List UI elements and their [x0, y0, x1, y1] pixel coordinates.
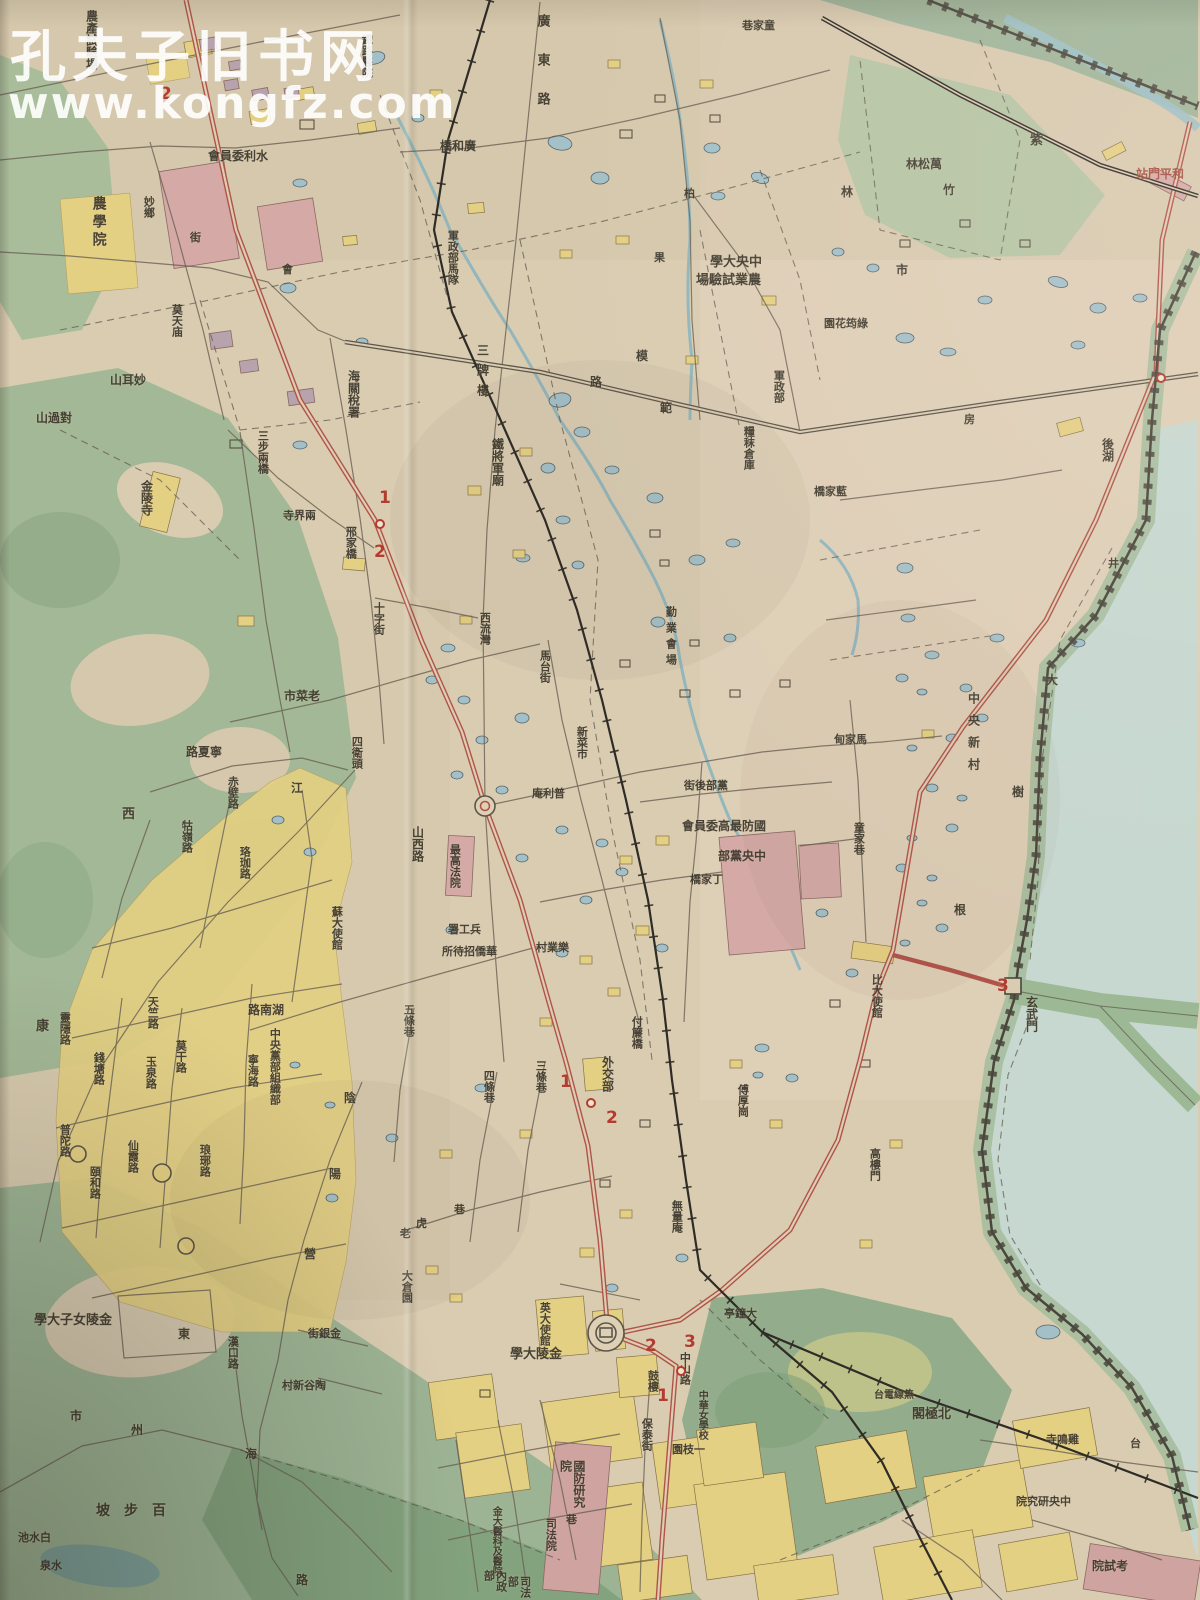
map-photo: 農產試驗場農學院妙鄉街會會員委利水鐵路醫院廣東路橋和廣軍政部馬隊學大央中場驗試業…	[0, 0, 1200, 1600]
map-label: 園花筠綠	[824, 318, 868, 330]
map-label: 範	[660, 402, 672, 415]
map-label: 莫天庙	[170, 304, 182, 337]
bus-route-marker: 2	[606, 1108, 618, 1128]
map-label: 市	[896, 264, 908, 277]
map-label: 勤業會場	[664, 606, 676, 670]
bus-route-marker: 2	[374, 542, 386, 562]
map-label: 營	[304, 1248, 316, 1261]
map-label: 三條巷	[534, 1060, 546, 1093]
map-label: 外交部	[600, 1056, 613, 1092]
map-label: 妙鄉	[142, 196, 154, 218]
map-label: 村新谷陶	[282, 1380, 326, 1392]
map-label: 無量庵	[670, 1200, 682, 1233]
map-label: 州	[131, 1424, 143, 1437]
map-label: 莫干路	[174, 1040, 186, 1073]
map-label: 寺鳴雞	[1046, 1434, 1079, 1446]
map-label: 路	[296, 1574, 308, 1587]
map-label: 康	[36, 1020, 49, 1035]
map-label: 金大醫科及醫院	[490, 1506, 501, 1576]
map-label: 西	[122, 808, 135, 823]
map-label: 村業樂	[536, 942, 569, 954]
map-label: 軍政部馬隊	[446, 230, 458, 285]
map-label: 比大使館	[870, 974, 882, 1018]
map-label: 糧秣倉庫	[742, 426, 754, 470]
map-label: 山西路	[410, 826, 423, 862]
map-label: 中華女學校	[696, 1390, 707, 1440]
bus-route-marker: 1	[560, 1072, 572, 1092]
map-label: 學大陵金	[510, 1348, 562, 1363]
map-label: 金陵寺	[139, 480, 152, 516]
map-label: 寺界兩	[283, 510, 316, 522]
map-label: 甸家馬	[834, 734, 867, 746]
map-label: 高樓門	[868, 1148, 880, 1181]
map-label: 老	[400, 1228, 411, 1240]
map-label: 果	[654, 252, 665, 264]
map-label: 三牌樓	[475, 344, 488, 404]
map-label: 後湖	[1100, 438, 1113, 462]
map-label: 保泰街	[640, 1418, 652, 1451]
map-label: 陰	[344, 1092, 356, 1105]
map-label: 署工兵	[448, 924, 481, 936]
map-label: 內政部	[482, 1570, 507, 1600]
map-label: 普陀路	[58, 1124, 70, 1157]
map-label: 英大使館	[538, 1302, 550, 1346]
map-label: 林松萬	[906, 158, 942, 171]
map-label: 泉水	[40, 1560, 62, 1572]
map-label: 天竺路	[146, 996, 158, 1029]
map-label: 付簾橋	[630, 1016, 642, 1049]
map-label: 童家巷	[852, 822, 864, 855]
map-label: 頤和路	[88, 1166, 100, 1199]
map-label: 池水白	[18, 1532, 51, 1544]
map-label: 大	[1046, 674, 1058, 687]
map-label: 路	[590, 376, 602, 389]
map-label: 街銀金	[308, 1328, 341, 1340]
map-label: 玉泉路	[144, 1056, 156, 1089]
map-label: 所待招僑華	[442, 946, 497, 958]
map-label: 台	[1130, 1438, 1141, 1450]
map-label: 四條巷	[482, 1070, 494, 1103]
map-label: 柏	[684, 188, 695, 200]
map-label: 鐵將軍廟	[490, 438, 503, 486]
map-label: 亭鐘大	[724, 1308, 757, 1320]
map-label: 巷	[566, 1514, 577, 1526]
map-label: 閣極北	[912, 1408, 951, 1423]
map-label: 五條巷	[402, 1004, 414, 1037]
map-label: 街	[190, 232, 201, 244]
map-label: 江	[291, 782, 303, 795]
watermark-site-url: www.kongfz.com	[8, 78, 457, 129]
map-label: 海	[245, 1448, 257, 1461]
map-label: 站門平和	[1136, 168, 1184, 181]
map-label: 山耳妙	[110, 374, 146, 387]
map-label: 市	[70, 1410, 82, 1423]
map-label: 仙霞路	[126, 1140, 138, 1173]
map-label: 虎	[416, 1218, 427, 1230]
map-label: 新菜市	[575, 726, 587, 759]
map-label: 房	[964, 414, 975, 426]
map-label: 院究研央中	[1016, 1496, 1071, 1508]
map-label: 陽	[329, 1168, 341, 1181]
map-label: 竹	[943, 184, 955, 197]
map-label: 珞珈路	[238, 846, 250, 879]
map-label: 琅琊路	[198, 1144, 210, 1177]
map-label: 國防研究院	[558, 1460, 585, 1518]
map-label: 巷家童	[742, 20, 775, 32]
map-label: 四衛頭	[350, 736, 362, 769]
map-label: 會員委高最防國	[682, 820, 766, 833]
map-label: 園枝一	[672, 1444, 705, 1456]
map-label: 根	[954, 904, 966, 917]
map-label: 模	[636, 350, 648, 363]
bus-route-marker: 2	[645, 1336, 657, 1356]
map-label: 紫	[1030, 134, 1043, 149]
bus-stop-ring	[676, 1366, 686, 1376]
map-label: 路南湖	[248, 1004, 284, 1017]
map-label: 會員委利水	[208, 150, 268, 163]
map-label: 學大子女陵金	[34, 1314, 112, 1329]
map-label: 司法部	[506, 1576, 531, 1600]
map-label: 樹	[1012, 786, 1024, 799]
map-label: 最高法院	[448, 844, 460, 888]
map-label: 橋家藍	[814, 486, 847, 498]
map-label: 廣東路	[534, 14, 549, 131]
map-label: 中央黨部組織部	[268, 1028, 280, 1105]
map-label: 路夏寧	[186, 746, 222, 759]
bus-route-marker: 3	[997, 976, 1009, 996]
map-label: 部黨央中	[718, 850, 766, 863]
map-label: 馬台街	[538, 650, 550, 683]
map-label: 台電線無	[874, 1390, 914, 1401]
map-label: 東	[178, 1328, 190, 1341]
map-label: 學大央中	[710, 256, 762, 271]
map-label: 玄武門	[1024, 996, 1037, 1032]
map-label: 靈隱路	[58, 1012, 70, 1045]
map-label: 三步兩橋	[256, 430, 268, 474]
map-label: 會	[282, 264, 293, 276]
map-label: 坡步百	[96, 1504, 180, 1520]
map-label: 司法院	[544, 1518, 556, 1551]
map-label: 橋和廣	[440, 140, 476, 153]
map-label: 蘇大使館	[330, 906, 342, 950]
map-label: 軍政部	[772, 370, 784, 403]
map-label: 海關稅署	[346, 370, 359, 418]
map-label: 街後部黨	[684, 780, 728, 792]
map-label: 中央新村	[966, 692, 979, 780]
map-label: 橋家丁	[690, 874, 723, 886]
map-label: 邢家橋	[344, 526, 356, 559]
map-label: 寧海路	[246, 1054, 258, 1087]
map-labels-layer: 農產試驗場農學院妙鄉街會會員委利水鐵路醫院廣東路橋和廣軍政部馬隊學大央中場驗試業…	[0, 0, 1200, 1600]
map-label: 庵利普	[532, 788, 565, 800]
map-label: 林	[841, 186, 853, 199]
map-label: 十字街	[372, 602, 384, 635]
bus-route-marker: 3	[684, 1332, 696, 1352]
bus-stop-ring	[375, 519, 385, 529]
map-label: 院試考	[1092, 1560, 1128, 1573]
map-label: 巷	[454, 1204, 465, 1216]
bus-route-marker: 1	[657, 1386, 669, 1406]
bus-route-marker: 1	[379, 488, 391, 508]
map-label: 農學院	[90, 196, 106, 250]
bus-stop-ring	[586, 1098, 596, 1108]
map-label: 井	[1108, 558, 1119, 570]
map-label: 山過對	[36, 412, 72, 425]
map-label: 西流灣	[478, 612, 490, 645]
map-label: 傅厚崗	[736, 1084, 748, 1117]
map-label: 錢塘路	[92, 1052, 104, 1085]
map-label: 赤壁路	[226, 776, 238, 809]
bus-stop-ring	[1156, 373, 1166, 383]
map-label: 大倉園	[400, 1270, 412, 1303]
map-label: 漢口路	[226, 1336, 238, 1369]
map-label: 市菜老	[284, 690, 320, 703]
map-label: 場驗試業農	[696, 274, 761, 289]
map-label: 牯嶺路	[180, 820, 192, 853]
